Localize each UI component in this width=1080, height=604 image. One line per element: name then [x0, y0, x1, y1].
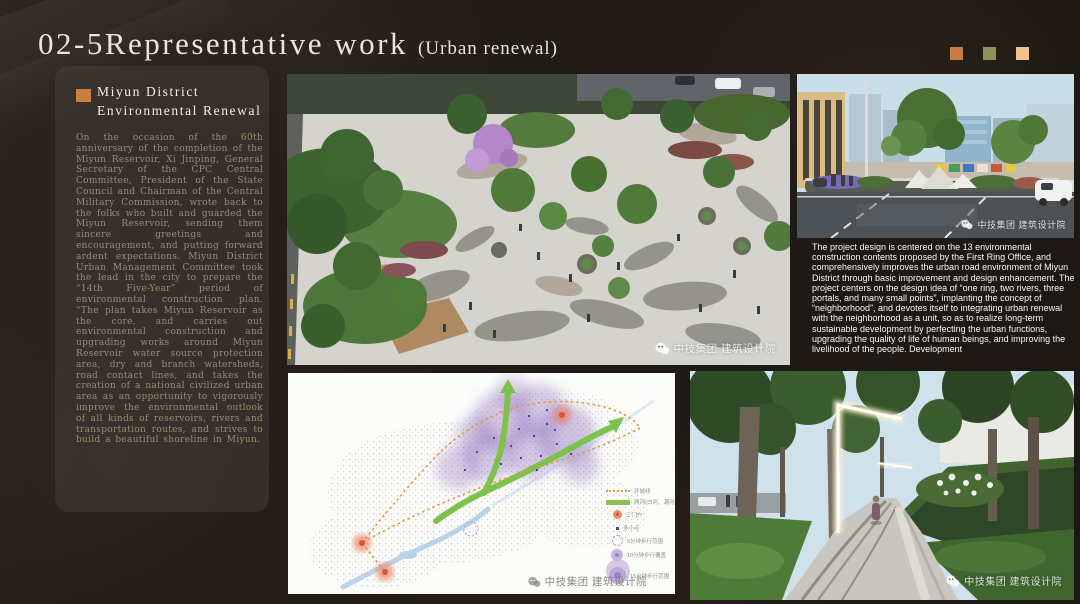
portal-circle-symbol: [613, 510, 622, 519]
watermark: 中技集团 建筑设计院: [946, 573, 1062, 588]
filled-circle-symbol: [611, 549, 623, 561]
watermark: 中技集团 建筑设计院: [528, 574, 647, 589]
section-heading: Miyun DistrictEnvironmental Renewal: [97, 82, 261, 120]
watermark-text: 中技集团 建筑设计院: [964, 573, 1062, 588]
slide-urban-renewal: 02-5Representative work(Urban renewal) M…: [0, 0, 1080, 604]
street-lamp-pole: [865, 82, 868, 180]
page-title: 02-5Representative work(Urban renewal): [38, 26, 558, 62]
rivers-bar-symbol: [606, 500, 630, 505]
small-point-symbol: [616, 527, 619, 530]
watermark-text: 中技集团 建筑设计院: [674, 341, 776, 356]
street-median-render: 中技集团 建筑设计院: [797, 74, 1074, 238]
aerial-plaza-illustration: [287, 74, 790, 365]
sidebar-body-text: On the occasion of the 60th anniversary …: [76, 133, 263, 446]
greenway-path-render: 中技集团 建筑设计院: [690, 371, 1074, 600]
watermark-text: 中技集团 建筑设计院: [977, 218, 1066, 231]
watermark-text: 中技集团 建筑设计院: [545, 574, 647, 589]
page-title-main: 02-5Representative work: [38, 26, 408, 61]
aerial-plaza-render: 中技集团 建筑设计院: [287, 74, 790, 365]
ring-line-symbol: [606, 490, 630, 492]
legend-item-ring: 环城线: [606, 487, 651, 495]
wechat-logo-icon: [946, 575, 960, 587]
watermark: 中技集团 建筑设计院: [655, 341, 776, 356]
greenway-illustration: [690, 371, 1074, 600]
legend-item-portals: 三门户: [606, 510, 643, 519]
legend-item-rivers: 两河(白河、潮河): [606, 498, 675, 506]
sidebar-panel: Miyun DistrictEnvironmental Renewal On t…: [55, 66, 269, 512]
wechat-logo-icon: [961, 219, 973, 230]
flower-bed: [916, 471, 1004, 507]
street-illustration: [797, 74, 1074, 238]
legend-item-5min: 5分钟步行范围: [606, 535, 663, 546]
decor-square-green: [983, 47, 996, 60]
project-description-text: The project design is centered on the 13…: [812, 242, 1076, 354]
dashed-circle-symbol: [612, 535, 623, 546]
wechat-logo-icon: [528, 576, 541, 588]
wechat-logo-icon: [655, 342, 670, 355]
decor-square-tan: [1016, 47, 1029, 60]
legend-item-10min: 10分钟步行覆盖: [606, 549, 666, 561]
road: [797, 192, 1074, 238]
heading-bullet-square: [76, 89, 91, 102]
page-title-subtitle: (Urban renewal): [418, 38, 558, 59]
concept-map-panel: 环城线 两河(白河、潮河) 三门户 多小点 5分钟步行范围 10分钟步行覆盖 1…: [288, 373, 675, 594]
decor-square-orange: [950, 47, 963, 60]
legend-item-points: 多小点: [606, 524, 640, 532]
watermark: 中技集团 建筑设计院: [961, 218, 1066, 231]
